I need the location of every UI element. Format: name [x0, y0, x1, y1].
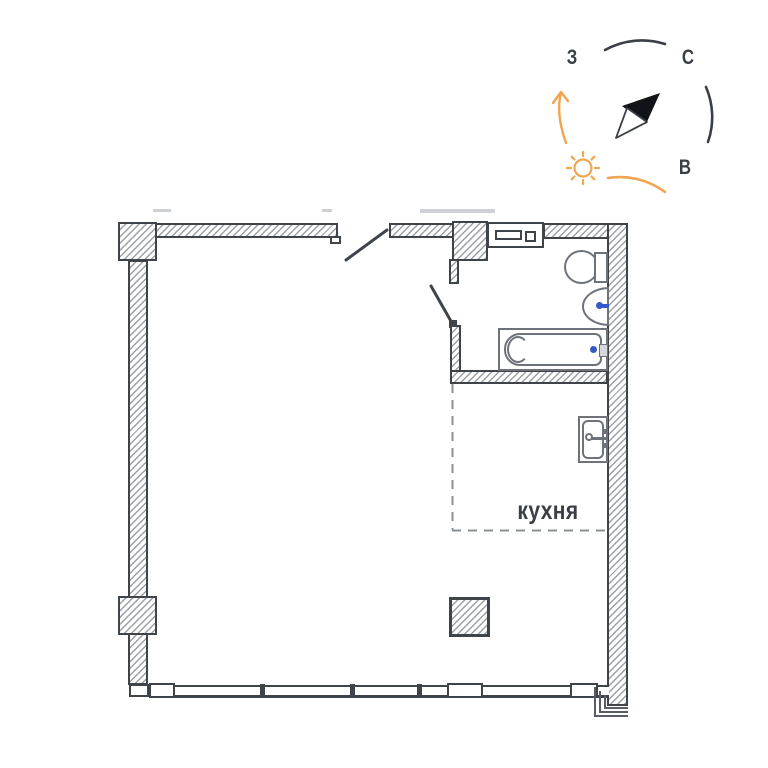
crop-artifact	[420, 209, 495, 213]
kitchen-faucet-knob	[585, 433, 593, 441]
door-jamb	[330, 236, 341, 244]
kitchen-faucet-dot	[603, 443, 608, 448]
duct-unit-knob	[525, 231, 536, 242]
window-mullion	[350, 684, 355, 698]
column-bottom-left	[118, 596, 157, 635]
sun-icon	[567, 152, 599, 184]
crop-artifact	[153, 209, 171, 212]
wall-top-west	[155, 223, 338, 238]
rotation-arrow-icon	[553, 92, 568, 143]
window-mullion	[260, 684, 265, 698]
ventilation-shaft	[452, 221, 488, 261]
washbasin-faucet-icon	[601, 304, 609, 308]
window-mullion	[417, 684, 422, 698]
compass-arc-top	[605, 40, 665, 50]
corner-detail	[604, 695, 628, 709]
bathroom-wall-stub	[449, 259, 459, 284]
bathroom-wall-south	[450, 370, 608, 384]
column-top-left	[118, 222, 157, 261]
compass-arc-bottom	[608, 177, 665, 192]
crop-artifact	[322, 209, 332, 212]
compass-arc-right	[706, 87, 712, 142]
compass-needle-icon	[616, 93, 660, 138]
window-frame	[149, 683, 175, 698]
floor-plan-page: З С В кухня	[0, 0, 768, 768]
duct-unit-slot	[495, 230, 522, 240]
column-freestanding	[449, 597, 490, 637]
kitchen-room-label: кухня	[506, 499, 590, 524]
bathroom-door-leaf	[431, 286, 452, 323]
bathtub-valve	[599, 344, 608, 357]
bathroom-wall-west	[450, 325, 461, 374]
window-frame	[447, 683, 483, 698]
toilet-tank	[594, 252, 608, 283]
kitchen-faucet-dot	[603, 429, 608, 434]
compass-label-north: С	[677, 47, 699, 68]
compass-label-east: В	[674, 157, 696, 178]
compass-label-west: З	[561, 47, 583, 68]
wall-right	[607, 223, 628, 706]
window-frame	[129, 684, 149, 697]
wall-top-east	[543, 223, 609, 239]
window-band	[173, 685, 609, 698]
entry-door-leaf	[346, 230, 387, 260]
bathtub-faucet-icon	[590, 346, 597, 353]
duct-unit	[487, 222, 544, 248]
bathtub-basin-arc	[507, 336, 529, 363]
wall-top-middle	[389, 223, 454, 238]
